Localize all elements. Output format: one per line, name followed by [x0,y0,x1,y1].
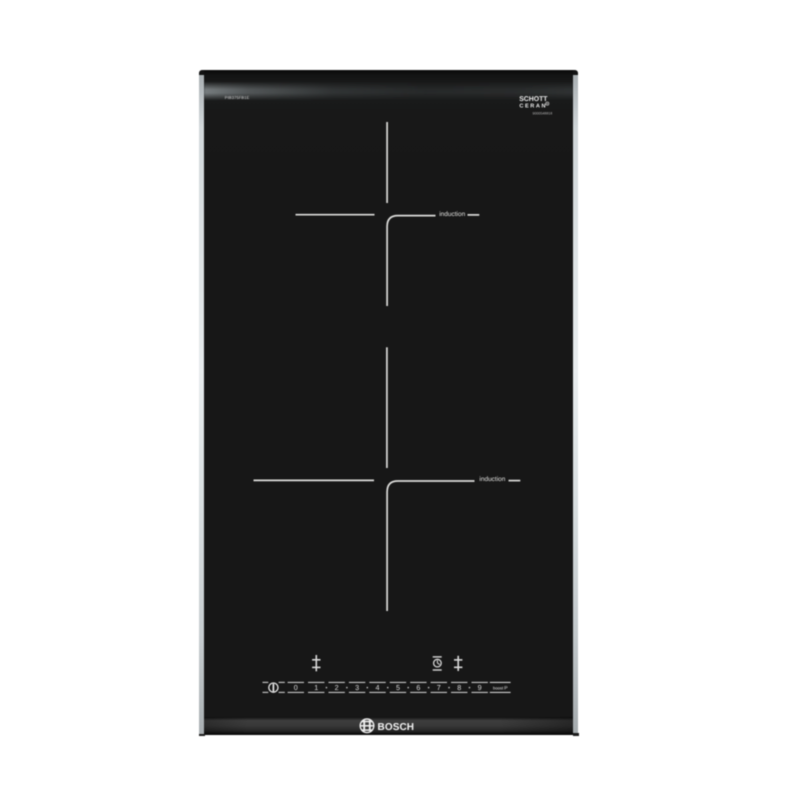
svg-text:9000548818: 9000548818 [533,112,553,116]
svg-text:5: 5 [396,683,400,692]
svg-text:8: 8 [457,683,461,692]
svg-text:CERAN: CERAN [519,103,547,109]
svg-text:SCHOTT: SCHOTT [519,96,548,103]
svg-text:4: 4 [376,683,380,692]
svg-text:7: 7 [437,683,441,692]
svg-text:boost: boost [493,685,504,690]
svg-text:induction: induction [479,476,505,483]
svg-text:P: P [504,686,508,692]
svg-text:BOSCH: BOSCH [378,722,415,733]
svg-text:9: 9 [478,683,482,692]
svg-text:3: 3 [355,683,359,692]
svg-text:1: 1 [314,683,318,692]
svg-text:2: 2 [335,683,339,692]
svg-text:PIB375FB1E: PIB375FB1E [225,95,250,100]
svg-text:induction: induction [439,211,465,218]
svg-text:6: 6 [416,683,420,692]
svg-text:0: 0 [294,683,298,692]
